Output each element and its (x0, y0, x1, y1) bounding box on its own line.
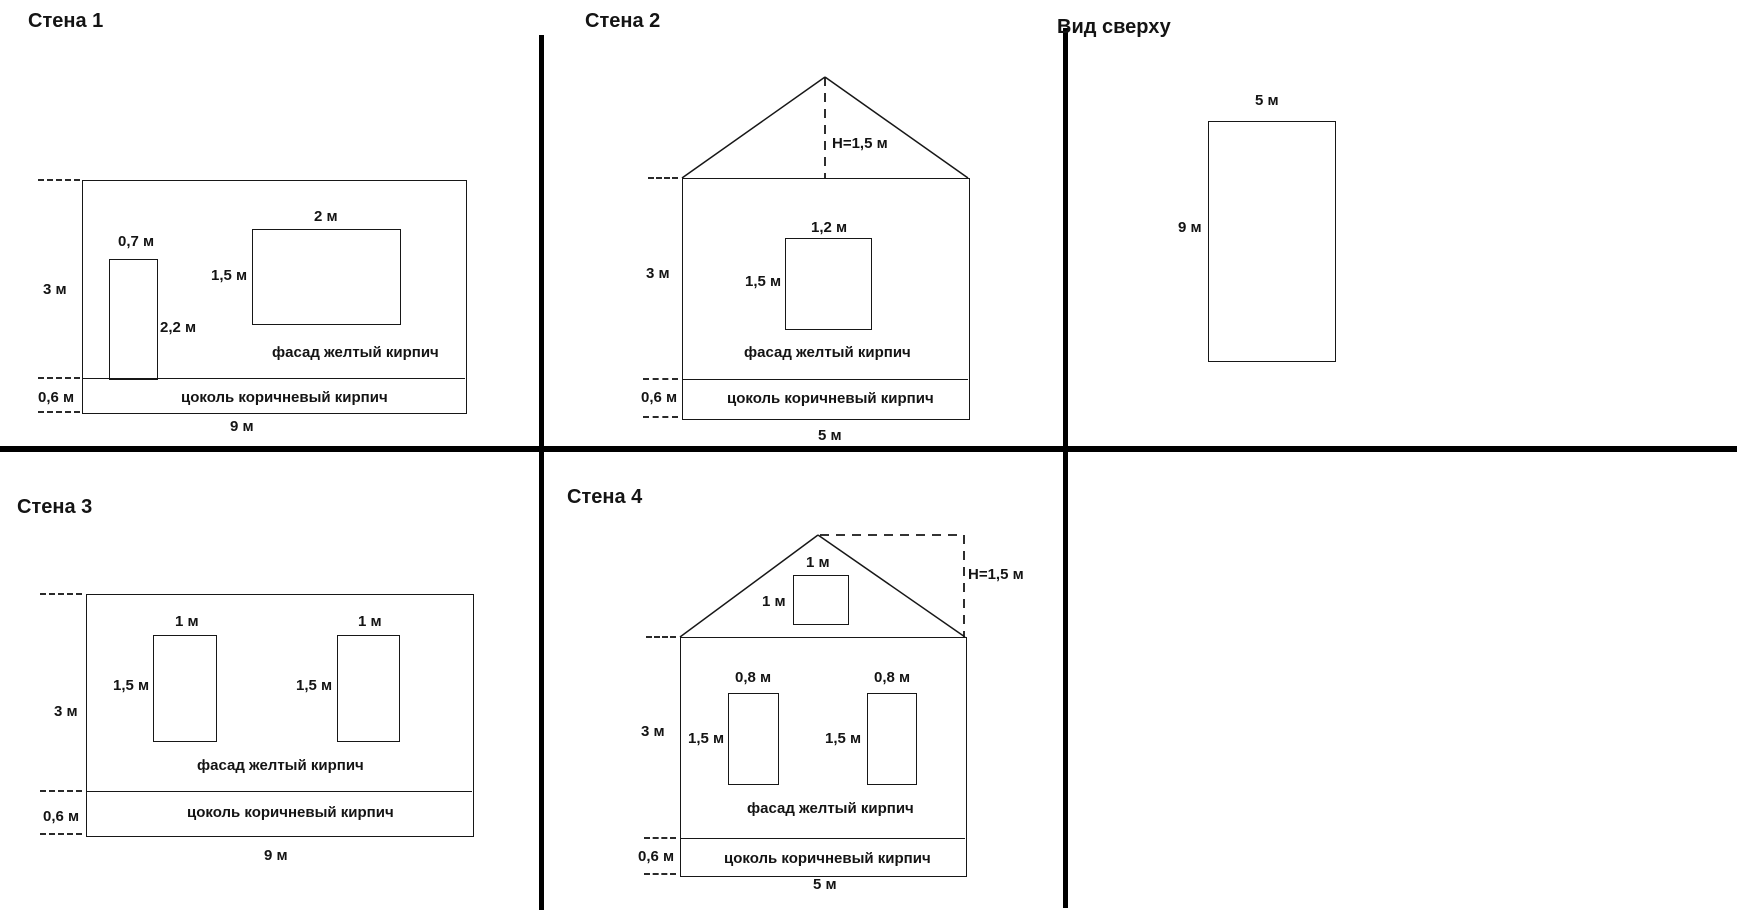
wall4-title: Стена 4 (567, 486, 642, 509)
panel-wall4: Стена 4 Н=1,5 м 1 м 1 м 0,8 м 0,8 м 1,5 … (0, 0, 1737, 910)
wall4-window-right (867, 693, 917, 785)
wall4-plinth-label: цоколь коричневый кирпич (724, 851, 931, 868)
wall4-roof-height-dim: Н=1,5 м (968, 567, 1024, 584)
wall4-dash-plinth-top (644, 837, 676, 839)
wall4-window-left-height-dim: 1,5 м (688, 731, 724, 748)
wall4-window-right-height-dim: 1,5 м (825, 731, 861, 748)
wall4-window-right-width-dim: 0,8 м (874, 670, 910, 687)
wall4-plinth-line (680, 838, 965, 839)
wall4-dash-bottom (644, 873, 676, 875)
wall4-window-left-width-dim: 0,8 м (735, 670, 771, 687)
wall4-attic-window (793, 575, 849, 625)
wall4-height-dim: 3 м (641, 724, 665, 741)
wall4-attic-window-height-dim: 1 м (762, 594, 786, 611)
wall4-window-left (728, 693, 779, 785)
wall4-facade-label: фасад желтый кирпич (747, 801, 914, 818)
wall4-attic-window-width-dim: 1 м (806, 555, 830, 572)
wall4-dash-top (646, 636, 676, 638)
wall4-outline (680, 637, 967, 877)
wall4-plinth-height-dim: 0,6 м (638, 849, 674, 866)
blueprint-canvas: Стена 1 3 м 0,6 м 0,7 м 2,2 м 2 м 1,5 м … (0, 0, 1737, 910)
wall4-width-dim: 5 м (813, 877, 837, 894)
